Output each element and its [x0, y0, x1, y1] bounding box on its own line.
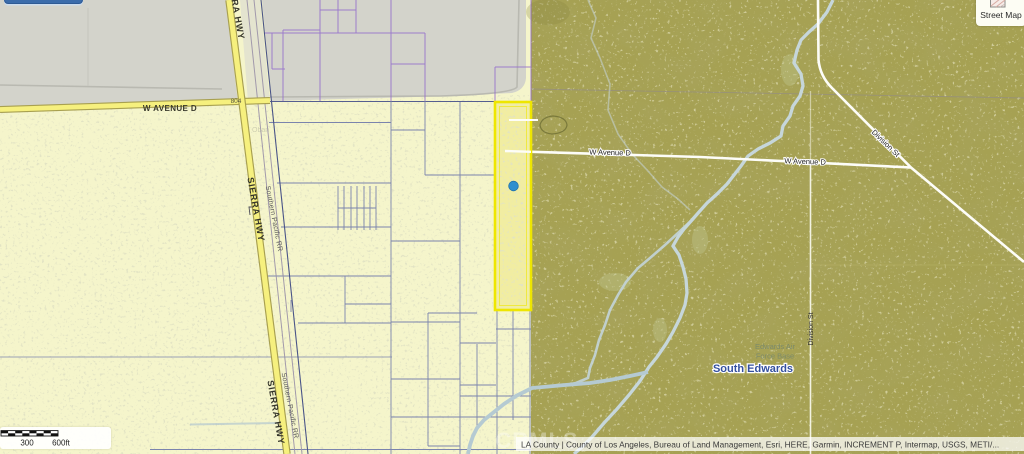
- svg-text:804: 804: [231, 98, 242, 105]
- svg-text:Force Base: Force Base: [756, 352, 794, 361]
- svg-text:W Avenue D: W Avenue D: [589, 147, 631, 157]
- svg-text:300: 300: [20, 439, 34, 448]
- svg-text:Edwards Air: Edwards Air: [755, 342, 796, 351]
- svg-text:Division St: Division St: [808, 312, 815, 345]
- svg-text:South Edwards: South Edwards: [713, 363, 793, 375]
- svg-text:LA County | County of Los Ange: LA County | County of Los Angeles, Burea…: [521, 439, 999, 449]
- svg-text:Oban: Oban: [252, 127, 269, 134]
- svg-text:600ft: 600ft: [52, 439, 71, 448]
- svg-text:W AVENUE D: W AVENUE D: [143, 104, 197, 113]
- svg-text:W Avenue D: W Avenue D: [784, 156, 826, 166]
